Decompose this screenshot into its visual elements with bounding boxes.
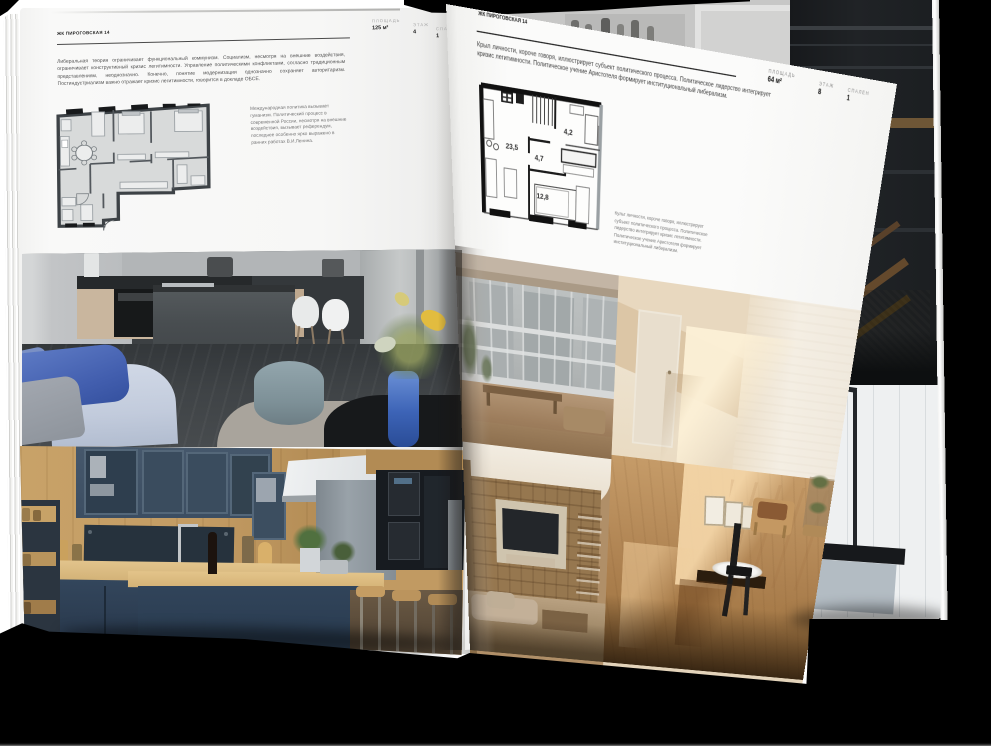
svg-text:23,5: 23,5 [506, 141, 519, 152]
svg-text:12,8: 12,8 [537, 191, 549, 202]
svg-text:4,7: 4,7 [535, 152, 544, 163]
svg-text:4,2: 4,2 [564, 126, 573, 137]
